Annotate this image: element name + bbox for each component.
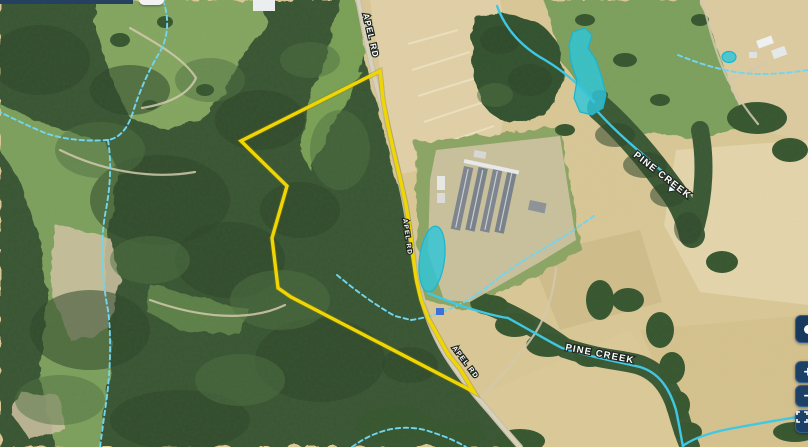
locate-button[interactable] [795,315,808,343]
fullscreen-button[interactable] [795,410,808,433]
map-canvas[interactable]: APEL RD APEL RD APEL RD PINE CREEK PINE … [0,0,808,447]
locate-icon [804,325,808,334]
zoom-in-button[interactable]: + [795,361,808,383]
aerial-imagery: APEL RD APEL RD APEL RD PINE CREEK PINE … [0,0,808,447]
zoom-out-button[interactable]: − [795,385,808,407]
imagery-grain [0,0,808,447]
top-toolbar-edge [0,0,133,4]
minus-icon: − [804,389,808,403]
fullscreen-icon [796,411,808,423]
top-control-fragment [139,0,164,5]
plus-icon: + [804,365,808,379]
